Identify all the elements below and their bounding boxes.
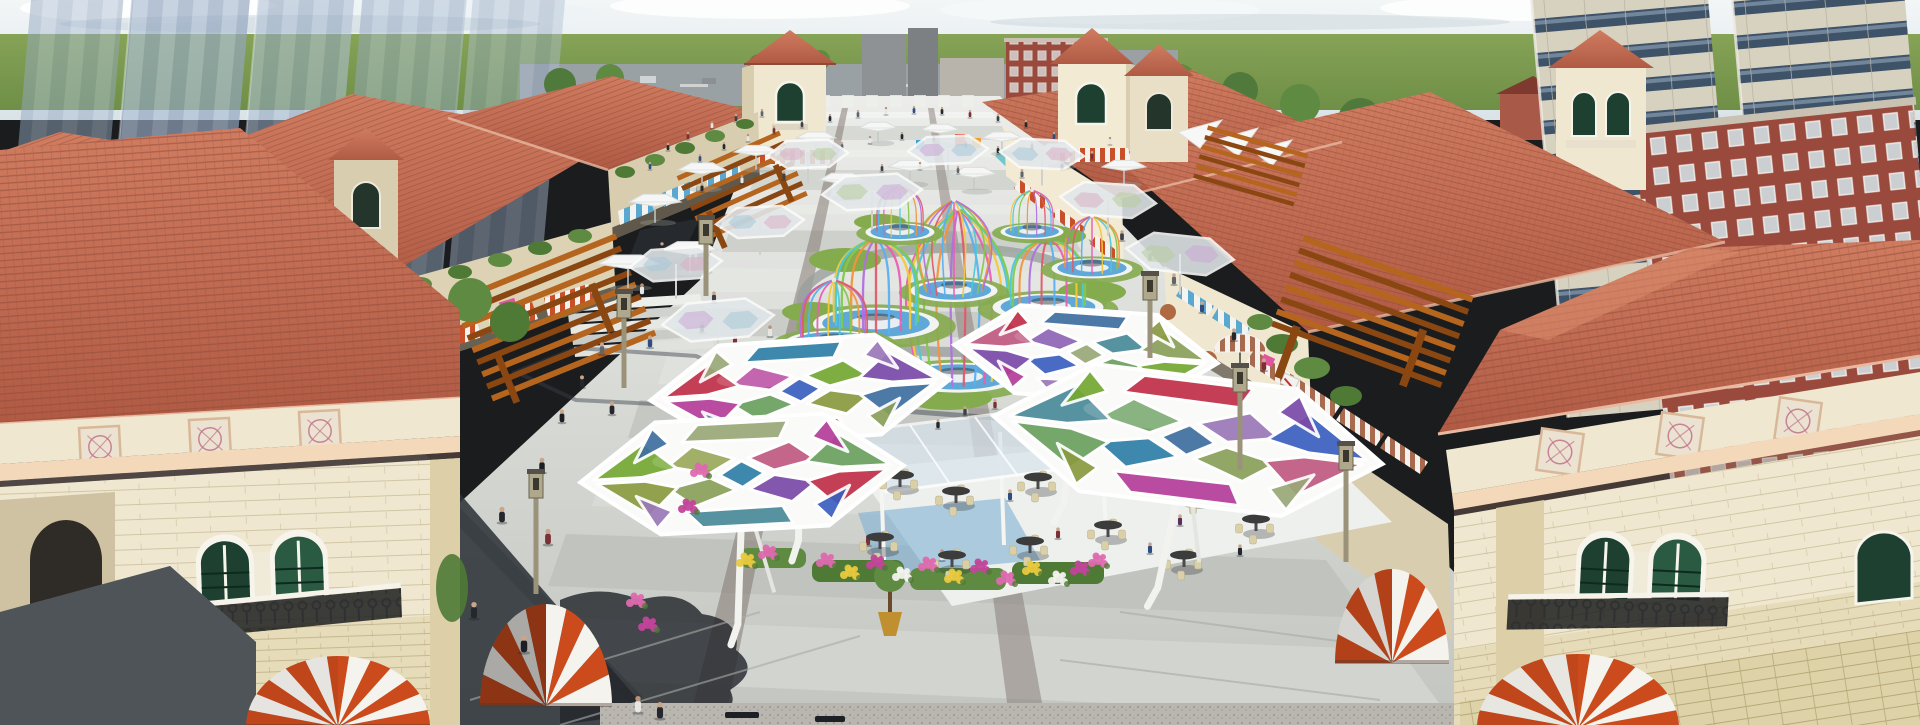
lamp-cap — [1231, 363, 1249, 368]
person-body — [1109, 139, 1112, 144]
person-shadow — [697, 161, 702, 162]
lamp-window — [1147, 280, 1153, 292]
flower — [741, 553, 748, 560]
person-head — [1178, 514, 1182, 518]
person-head — [545, 529, 550, 534]
flower — [1100, 554, 1106, 560]
person-body — [1178, 518, 1182, 526]
cafe-chair — [1041, 546, 1048, 555]
flower — [918, 563, 926, 571]
person-body — [699, 156, 702, 161]
flower-leaf — [934, 567, 940, 573]
flower — [748, 554, 754, 560]
person-head — [540, 458, 545, 463]
person-shadow — [1198, 312, 1206, 314]
flower — [944, 575, 952, 583]
flower — [1070, 567, 1078, 575]
person-body — [735, 116, 738, 121]
flower-leaf — [882, 565, 888, 571]
person-head — [521, 635, 527, 641]
person-head — [1172, 273, 1176, 277]
person-head — [1232, 328, 1236, 332]
flower-leaf — [1012, 581, 1018, 587]
flower — [996, 577, 1004, 585]
person-head — [937, 419, 940, 422]
flower — [1088, 559, 1096, 567]
person-shadow — [827, 121, 832, 122]
cage-occupants — [1031, 298, 1064, 305]
person-head — [580, 375, 584, 379]
person-head — [1091, 151, 1094, 154]
person-head — [869, 136, 871, 138]
person-body — [1238, 548, 1242, 556]
person-head — [913, 106, 915, 108]
person-head — [1238, 544, 1242, 548]
person-body — [941, 109, 944, 114]
person-shadow — [1118, 240, 1125, 242]
person-head — [610, 402, 614, 406]
lamp-window — [703, 224, 709, 236]
table-top — [1024, 473, 1052, 482]
person-shadow — [1170, 284, 1178, 286]
tower-window — [1076, 83, 1106, 124]
lamp-cap — [615, 289, 633, 294]
person-body — [1148, 546, 1152, 554]
flower — [643, 617, 650, 624]
person-body — [610, 405, 615, 414]
person-shadow — [685, 139, 690, 140]
flower — [923, 557, 930, 564]
table-top — [1016, 537, 1044, 546]
flower — [821, 553, 828, 560]
person-head — [1262, 358, 1266, 362]
lamp-cap — [697, 215, 715, 220]
flower — [1034, 562, 1040, 568]
person-body — [1172, 277, 1176, 285]
flower — [690, 500, 696, 506]
arched-window-partial — [1856, 532, 1912, 604]
person-head — [712, 291, 716, 295]
foreground-right-building — [1438, 240, 1920, 725]
umbrella-shadow — [868, 140, 895, 146]
flower-leaf — [1104, 563, 1110, 569]
person-body — [711, 123, 714, 128]
cafe-chair — [1178, 571, 1185, 580]
flower — [871, 555, 878, 562]
flower — [845, 565, 852, 572]
cafe-chair — [1018, 482, 1025, 491]
person-shadow — [665, 150, 670, 151]
flower-leaf — [694, 509, 700, 515]
person-shadow — [955, 173, 960, 174]
person-shadow — [962, 415, 968, 417]
table-top — [1170, 551, 1198, 560]
cafe-chair — [1049, 482, 1056, 491]
person-head — [964, 406, 967, 409]
flower — [763, 545, 770, 552]
person-body — [747, 136, 750, 141]
cafe-chair — [1267, 524, 1274, 533]
person-body — [857, 112, 860, 117]
lamp-pole — [622, 318, 627, 388]
person-head — [635, 696, 640, 701]
flower — [975, 559, 982, 566]
person-shadow — [759, 116, 764, 117]
lamp-window — [1343, 450, 1349, 462]
plaza-svg — [0, 0, 1920, 725]
flower — [897, 567, 904, 574]
cafe-chair — [1088, 530, 1095, 539]
person-body — [723, 144, 726, 149]
flower — [758, 551, 766, 559]
person-shadow — [867, 143, 872, 144]
cafe-chair — [1250, 535, 1257, 544]
cafe-chair — [1119, 530, 1126, 539]
person-body — [580, 379, 584, 387]
person-head — [994, 399, 997, 402]
person-body — [471, 607, 477, 619]
person-shadow — [799, 127, 804, 128]
person-body — [919, 164, 922, 169]
lamp-cap — [527, 469, 545, 474]
flower — [770, 546, 776, 552]
flower — [930, 558, 936, 564]
person-body — [768, 329, 772, 337]
cage-occupants — [940, 368, 976, 375]
person-shadow — [733, 121, 738, 122]
flower — [904, 568, 910, 574]
table-top — [866, 533, 894, 542]
person-head — [957, 166, 959, 168]
person-body — [740, 177, 743, 183]
umbrella-shadow — [688, 186, 722, 192]
lamp-pole — [1344, 470, 1349, 562]
person-body — [1262, 362, 1266, 370]
tower-window — [1146, 93, 1172, 130]
person-head — [687, 132, 689, 134]
flower-leaf — [752, 563, 758, 569]
person-body — [648, 339, 652, 347]
person-shadow — [1146, 553, 1154, 555]
person-head — [499, 507, 504, 512]
flower — [852, 566, 858, 572]
person-head — [1148, 542, 1152, 546]
flower — [1053, 571, 1060, 578]
person-body — [1053, 134, 1056, 139]
flower — [816, 559, 824, 567]
flower-leaf — [986, 569, 992, 575]
person-body — [640, 287, 644, 295]
flower — [1022, 567, 1030, 575]
person-shadow — [1236, 555, 1244, 557]
person-head — [768, 325, 772, 329]
wall-medallion — [1536, 428, 1583, 475]
person-head — [640, 283, 644, 287]
person-head — [711, 121, 713, 123]
person-body — [635, 701, 641, 713]
flower — [1008, 572, 1014, 578]
tower-window — [776, 82, 804, 122]
person-shadow — [883, 114, 888, 115]
person-body — [649, 164, 652, 169]
person-shadow — [721, 149, 726, 150]
flower — [982, 560, 988, 566]
lamp-pole — [1148, 300, 1153, 358]
cage-occupants — [1023, 224, 1042, 231]
cafe-chair — [911, 480, 918, 489]
person-body — [600, 346, 604, 354]
person-head — [1109, 137, 1111, 139]
person-head — [829, 114, 831, 116]
flower — [878, 556, 884, 562]
flower — [1060, 572, 1066, 578]
person-shadow — [911, 113, 916, 114]
person-shadow — [992, 408, 998, 410]
person-body — [1090, 153, 1093, 159]
table-top — [942, 487, 970, 496]
person-shadow — [938, 560, 946, 562]
person-head — [857, 110, 859, 112]
person-body — [521, 640, 527, 652]
cafe-chair — [1010, 546, 1017, 555]
person-body — [700, 185, 703, 191]
person-shadow — [899, 139, 904, 140]
lamp-pole — [1238, 392, 1243, 470]
person-shadow — [1054, 538, 1062, 540]
person-head — [997, 146, 999, 148]
flower-leaf — [706, 473, 712, 479]
person-shadow — [879, 171, 884, 172]
person-head — [1053, 132, 1055, 134]
brown-awning — [1380, 436, 1428, 474]
person-shadow — [995, 153, 1000, 154]
person-shadow — [647, 169, 652, 170]
person-head — [885, 107, 887, 109]
flower — [690, 469, 698, 477]
person-body — [1025, 122, 1028, 127]
cafe-chair — [963, 560, 970, 569]
distant-car — [640, 76, 656, 83]
flower-leaf — [832, 563, 838, 569]
flower — [638, 594, 644, 600]
person-head — [919, 162, 921, 164]
person-body — [957, 168, 960, 173]
person-body — [936, 422, 939, 428]
cloud-shadow-band — [990, 14, 1510, 30]
person-body — [782, 173, 785, 179]
flower-leaf — [642, 603, 648, 609]
ivy — [436, 554, 468, 622]
person-head — [1025, 120, 1027, 122]
cage-finial — [832, 278, 837, 283]
person-shadow — [1006, 500, 1014, 502]
flower — [702, 464, 708, 470]
person-body — [829, 116, 832, 121]
person-body — [667, 145, 670, 150]
person-head — [735, 114, 737, 116]
person-shadow — [935, 428, 941, 430]
flower — [638, 623, 646, 631]
person-body — [1232, 332, 1236, 340]
person-body — [885, 109, 888, 114]
person-head — [1021, 169, 1024, 172]
person-head — [941, 107, 943, 109]
person-body — [657, 707, 663, 719]
flower — [1048, 577, 1056, 585]
table-top — [938, 551, 966, 560]
person-shadow — [1089, 159, 1095, 161]
cafe-chair — [1102, 541, 1109, 550]
lamp-cap — [1141, 271, 1159, 276]
person-shadow — [1019, 177, 1025, 179]
distant-car — [702, 78, 716, 84]
window-pilaster — [1632, 551, 1648, 600]
person-head — [741, 175, 744, 178]
person-shadow — [1176, 525, 1184, 527]
flower-leaf — [1086, 571, 1092, 577]
cafe-chair — [894, 491, 901, 500]
flower — [1001, 571, 1008, 578]
person-body — [1200, 305, 1204, 313]
cafe-chair — [967, 496, 974, 505]
flower-leaf — [1064, 581, 1070, 587]
person-body — [801, 122, 804, 127]
person-shadow — [638, 294, 646, 296]
person-head — [471, 602, 476, 607]
person-head — [997, 114, 999, 116]
lamp-cap — [1337, 441, 1355, 446]
cafe-chair — [936, 496, 943, 505]
person-head — [648, 335, 652, 339]
person-head — [657, 702, 662, 707]
person-shadow — [855, 117, 860, 118]
person-head — [701, 183, 704, 186]
person-head — [761, 109, 763, 111]
flower — [678, 505, 686, 513]
person-body — [969, 112, 972, 117]
person-head — [1120, 230, 1123, 233]
person-head — [600, 342, 604, 346]
person-head — [560, 410, 564, 414]
person-body — [1120, 233, 1124, 240]
flower — [626, 599, 634, 607]
cafe-chair — [891, 542, 898, 551]
person-head — [783, 171, 786, 174]
umbrella-shadow — [640, 220, 676, 226]
flower-leaf — [908, 577, 914, 583]
lamp-window — [1237, 372, 1243, 384]
person-shadow — [967, 117, 972, 118]
person-head — [841, 142, 843, 144]
person-body — [963, 409, 966, 415]
cage-finial — [1030, 188, 1034, 192]
lamp-pole — [534, 498, 539, 594]
flower-leaf — [654, 627, 660, 633]
person-head — [723, 142, 725, 144]
flower — [631, 593, 638, 600]
person-body — [993, 402, 996, 408]
flower — [828, 554, 834, 560]
person-head — [667, 143, 669, 145]
flower — [650, 618, 656, 624]
person-body — [1020, 171, 1023, 177]
person-head — [747, 134, 749, 136]
person-head — [1008, 489, 1012, 493]
person-body — [545, 533, 551, 544]
flower — [1082, 562, 1088, 568]
lamp-pole — [704, 244, 709, 296]
table-top — [1094, 521, 1122, 530]
flower-leaf — [856, 575, 862, 581]
person-head — [699, 154, 701, 156]
person-head — [881, 164, 883, 166]
cafe-chair — [950, 507, 957, 516]
person-body — [773, 128, 776, 133]
person-head — [901, 132, 903, 134]
person-body — [1056, 531, 1060, 539]
flower — [1093, 553, 1100, 560]
flower — [949, 569, 956, 576]
person-head — [773, 126, 775, 128]
flower — [840, 571, 848, 579]
flower — [683, 499, 690, 506]
flower — [1027, 561, 1034, 568]
person-head — [660, 242, 663, 245]
flower — [695, 463, 702, 470]
cafe-chair — [860, 542, 867, 551]
person-body — [499, 511, 505, 522]
person-shadow — [917, 169, 922, 170]
glass-panel — [681, 420, 789, 443]
umbrella-shadow — [962, 189, 993, 195]
umbrella-shadow — [744, 167, 775, 173]
flower — [892, 573, 900, 581]
person-body — [881, 166, 884, 171]
person-head — [649, 162, 651, 164]
person-shadow — [766, 336, 774, 338]
person-shadow — [781, 179, 787, 181]
flower — [970, 565, 978, 573]
person-shadow — [745, 141, 750, 142]
cafe-chair — [1032, 493, 1039, 502]
person-shadow — [739, 183, 745, 185]
person-shadow — [995, 121, 1000, 122]
flower-leaf — [960, 579, 966, 585]
tower-window — [352, 182, 380, 228]
person-shadow — [939, 114, 944, 115]
person-shadow — [1023, 127, 1028, 128]
person-body — [687, 134, 690, 139]
lamp-window — [533, 478, 539, 490]
person-body — [997, 116, 1000, 121]
person-shadow — [1107, 144, 1112, 145]
lamp-window — [621, 298, 627, 310]
person-body — [1008, 493, 1012, 501]
person-body — [901, 134, 904, 139]
person-body — [869, 138, 872, 143]
person-body — [761, 111, 764, 116]
person-head — [1056, 527, 1060, 531]
person-head — [969, 110, 971, 112]
window-pilaster — [254, 552, 272, 601]
flower-leaf — [774, 555, 780, 561]
flower-leaf — [1038, 571, 1044, 577]
rendered-plaza-scene — [0, 0, 1920, 725]
cafe-chair — [1236, 524, 1243, 533]
person-head — [1200, 301, 1204, 305]
cage-finial — [952, 198, 956, 202]
flower — [1075, 561, 1082, 568]
